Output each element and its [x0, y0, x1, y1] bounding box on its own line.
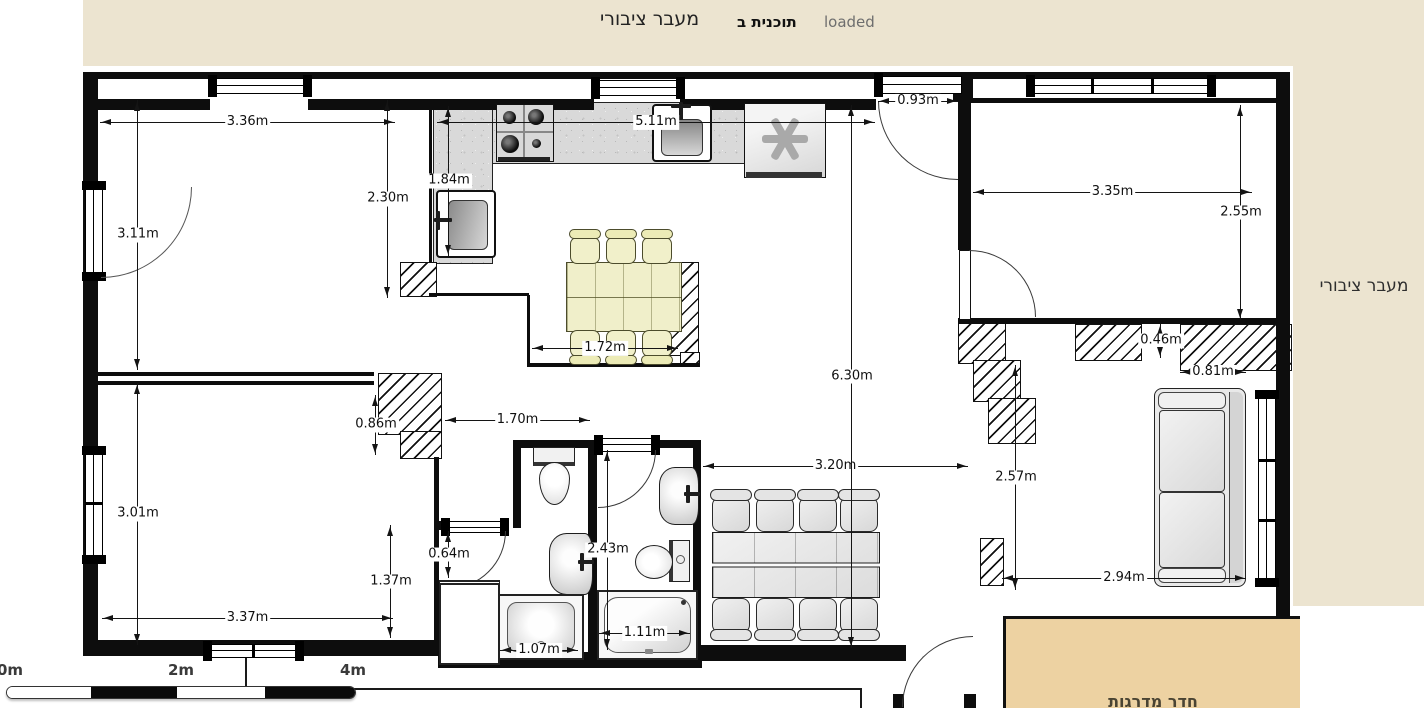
chair: [712, 598, 750, 633]
window-cap: [1026, 75, 1035, 97]
wall-segment: [429, 293, 529, 296]
stairwell-label: חדר מדרגות: [1108, 692, 1198, 708]
chair: [606, 237, 636, 264]
scale-segment: [177, 687, 265, 698]
scale-tick-2: 2m: [168, 661, 194, 679]
kitchen-sink: [652, 104, 712, 162]
scale-tick-0: 0m: [0, 661, 23, 679]
dim-niche-width: 0.81m: [1180, 372, 1246, 373]
window-cap: [208, 75, 217, 97]
window-cap: [591, 77, 600, 99]
appliance-asterisk: [744, 103, 826, 178]
window-mullion: [85, 502, 103, 505]
dim-room-tl-height: 3.11m: [137, 100, 138, 370]
outline: [860, 688, 862, 708]
toilet-bowl: [635, 545, 673, 579]
chair: [756, 598, 794, 633]
side-corridor-strip: [1293, 66, 1424, 606]
bathroom-sink: [659, 467, 699, 525]
sofa-armrest: [1158, 568, 1226, 583]
faucet-icon: [686, 485, 690, 503]
floor-plan-viewer: מעבר ציבורי תוכנית ב loaded חדר מדרגות מ…: [0, 0, 1424, 708]
sofa-armrest: [1158, 392, 1226, 409]
dim-living-width: 2.94m: [1002, 578, 1246, 579]
window: [876, 76, 962, 94]
scale-segment: [91, 687, 177, 698]
side-corridor-label: מעבר ציבורי: [1312, 276, 1416, 296]
chair: [642, 237, 672, 264]
wall-segment: [83, 99, 210, 110]
faucet-icon: [580, 553, 584, 571]
tub-tap: [681, 600, 686, 605]
dim-shower-width: 1.07m: [500, 650, 578, 651]
chair: [756, 497, 794, 532]
window-cap: [82, 555, 106, 564]
window-mullion: [1091, 78, 1094, 94]
dim-tub-width: 1.11m: [599, 633, 690, 634]
dim-counter-height: 1.84m: [448, 106, 449, 256]
window: [210, 78, 310, 94]
dim-room-bl-width: 3.37m: [102, 618, 393, 619]
dim-living-gap: 3.20m: [703, 466, 968, 467]
window-cap: [1255, 390, 1279, 399]
hatched-wall: [400, 431, 442, 459]
window-cap: [874, 73, 883, 97]
window-cap: [303, 75, 312, 97]
dim-room-bl-height: 3.01m: [137, 383, 138, 645]
status-text: loaded: [824, 13, 875, 31]
flush-button: [676, 555, 685, 564]
wall-segment: [958, 102, 971, 250]
window-cap: [1255, 578, 1279, 587]
hatched-wall: [988, 398, 1036, 444]
chair: [840, 598, 878, 633]
window-mullion: [1258, 519, 1276, 522]
stove-control-strip: [498, 157, 550, 161]
hatched-wall: [958, 322, 1006, 364]
dim-kitchen-height: 2.30m: [387, 100, 388, 298]
dim-wall-offset: 0.46m: [1160, 324, 1161, 358]
corridor-title: מעבר ציבורי: [600, 8, 699, 30]
burner: [532, 139, 541, 148]
window-cap: [203, 641, 212, 661]
dim-hall-length: 6.30m: [851, 105, 852, 648]
dim-dining-width: 1.72m: [532, 348, 678, 349]
wall-segment: [1276, 72, 1290, 618]
chair: [712, 497, 750, 532]
chair: [642, 330, 672, 357]
window: [1258, 392, 1276, 585]
scale-segment: [7, 687, 91, 698]
window: [593, 80, 683, 96]
dim-wall-gap: 0.86m: [375, 395, 376, 455]
dim-room-tl-width: 3.36m: [100, 122, 395, 123]
hatched-wall: [1075, 324, 1142, 361]
chair: [570, 237, 600, 264]
chair: [840, 497, 878, 532]
stove-grid: [497, 131, 553, 133]
hatched-wall: [400, 262, 437, 297]
scale-segment: [265, 687, 355, 698]
dim-kitchen-width: 5.11m: [437, 122, 875, 123]
faucet-icon: [436, 211, 440, 230]
dim-room-tr-width: 3.35m: [973, 192, 1252, 193]
window-cap: [82, 446, 106, 455]
stove-grid: [523, 105, 525, 161]
window: [205, 644, 302, 658]
sofa-cushion: [1159, 492, 1225, 568]
chair: [799, 598, 837, 633]
plan-name: תוכנית ב: [737, 13, 797, 31]
window-mullion: [252, 644, 255, 658]
window-cap: [1207, 75, 1216, 97]
dim-entry-door-width: 0.93m: [878, 101, 958, 102]
window-mullion: [1258, 459, 1276, 462]
wall-segment: [958, 98, 1290, 103]
dim-room-tr-height: 2.55m: [1240, 105, 1241, 320]
dim-bath2-height: 2.43m: [607, 450, 608, 650]
stairwell-area: חדר מדרגות: [1003, 616, 1300, 708]
sink-basin: [448, 200, 488, 250]
dim-living-height: 2.57m: [1015, 365, 1016, 590]
chair: [799, 497, 837, 532]
window-mullion: [1151, 78, 1154, 94]
wall-segment: [513, 440, 521, 528]
window: [85, 448, 103, 562]
sofa-back: [1229, 392, 1243, 583]
scale-bar: [6, 686, 356, 699]
tub-drain: [645, 649, 653, 654]
sofa: [1154, 388, 1246, 587]
top-bar: [83, 0, 1424, 66]
dim-room-bl-offset: 1.37m: [390, 525, 391, 638]
stove: [496, 104, 554, 162]
wall-segment: [83, 72, 98, 656]
wall-segment: [527, 295, 530, 366]
dim-hall-width: 1.70m: [445, 420, 590, 421]
wall-segment: [97, 372, 374, 376]
appliance-strip: [746, 172, 822, 178]
window: [1028, 78, 1214, 94]
window-cap: [676, 77, 685, 99]
outline: [245, 656, 247, 690]
wall-segment: [700, 645, 906, 661]
scale-tick-4: 4m: [340, 661, 366, 679]
faucet-icon: [671, 104, 691, 108]
burner: [501, 135, 519, 153]
dining-table: [566, 262, 682, 332]
sofa-cushion: [1159, 410, 1225, 492]
closet: [439, 580, 500, 665]
window-cap: [295, 641, 304, 661]
dim-bath-door: 0.64m: [448, 531, 449, 578]
dining-table: [712, 532, 880, 598]
